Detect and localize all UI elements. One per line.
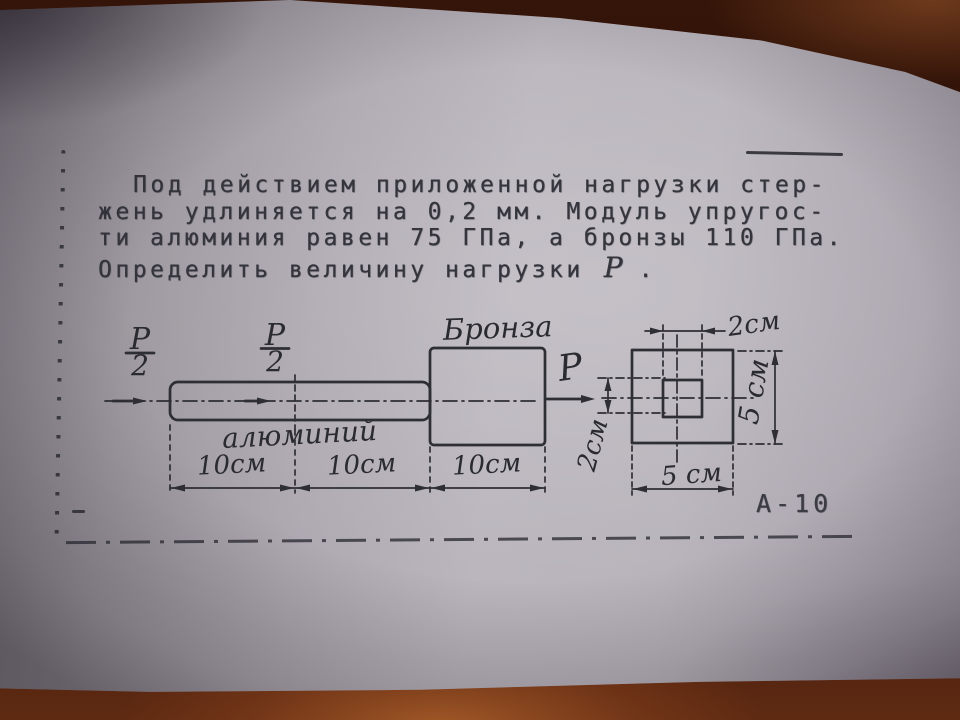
margin-dash-mark (72, 510, 85, 513)
dim-outer-width-label: 5 см (660, 458, 723, 492)
half-load-denominator: 2 (265, 345, 284, 378)
header-rule-line (746, 151, 843, 156)
half-load-fraction-middle: P 2 (261, 318, 289, 378)
load-arrow-right (547, 395, 595, 403)
half-load-arrow-middle (245, 398, 271, 405)
rod-diagram: P 2 P 2 Бронза алюминий P (85, 293, 805, 508)
text-line-4: Определить величину нагрузкиP. (98, 251, 656, 284)
dim-inner-width-label: 2см (725, 306, 782, 343)
half-load-fraction-left: P 2 (126, 322, 154, 382)
margin-perforation-dots (55, 150, 66, 540)
dim-seg2-label: 10см (326, 448, 397, 482)
text-line-4-prefix: Определить величину нагрузки (98, 257, 584, 283)
dim-seg3-label: 10см (451, 448, 522, 482)
load-symbol-inline: P (604, 251, 623, 284)
text-line-4-period: . (639, 257, 656, 283)
dim-seg1-label: 10см (196, 448, 267, 482)
half-load-arrow-left (113, 398, 147, 405)
load-label: P (555, 346, 586, 390)
dim-outer-height-label: 5 см (732, 356, 776, 426)
text-line-3: ти алюминия равен 75 ГПа, а бронзы 110 Г… (98, 225, 844, 251)
sheet-code: А-10 (756, 489, 832, 518)
dim-inner-height-label: 2см (572, 416, 615, 476)
text-line-2: жень удлиняется на 0,2 мм. Модуль упруго… (98, 199, 827, 225)
document-content: Под действием приложенной нагрузки стер-… (0, 0, 960, 720)
paper-sheet: Под действием приложенной нагрузки стер-… (0, 0, 960, 720)
bronze-label: Бронза (441, 309, 553, 347)
bronze-block-outline (430, 348, 545, 445)
text-line-1: Под действием приложенной нагрузки стер- (133, 172, 827, 198)
half-load-denominator: 2 (130, 349, 149, 382)
tear-dash-line (66, 535, 856, 544)
section-outer-square (632, 350, 733, 443)
cross-section-view: 2см 5 см 5 см 2см (572, 306, 785, 495)
